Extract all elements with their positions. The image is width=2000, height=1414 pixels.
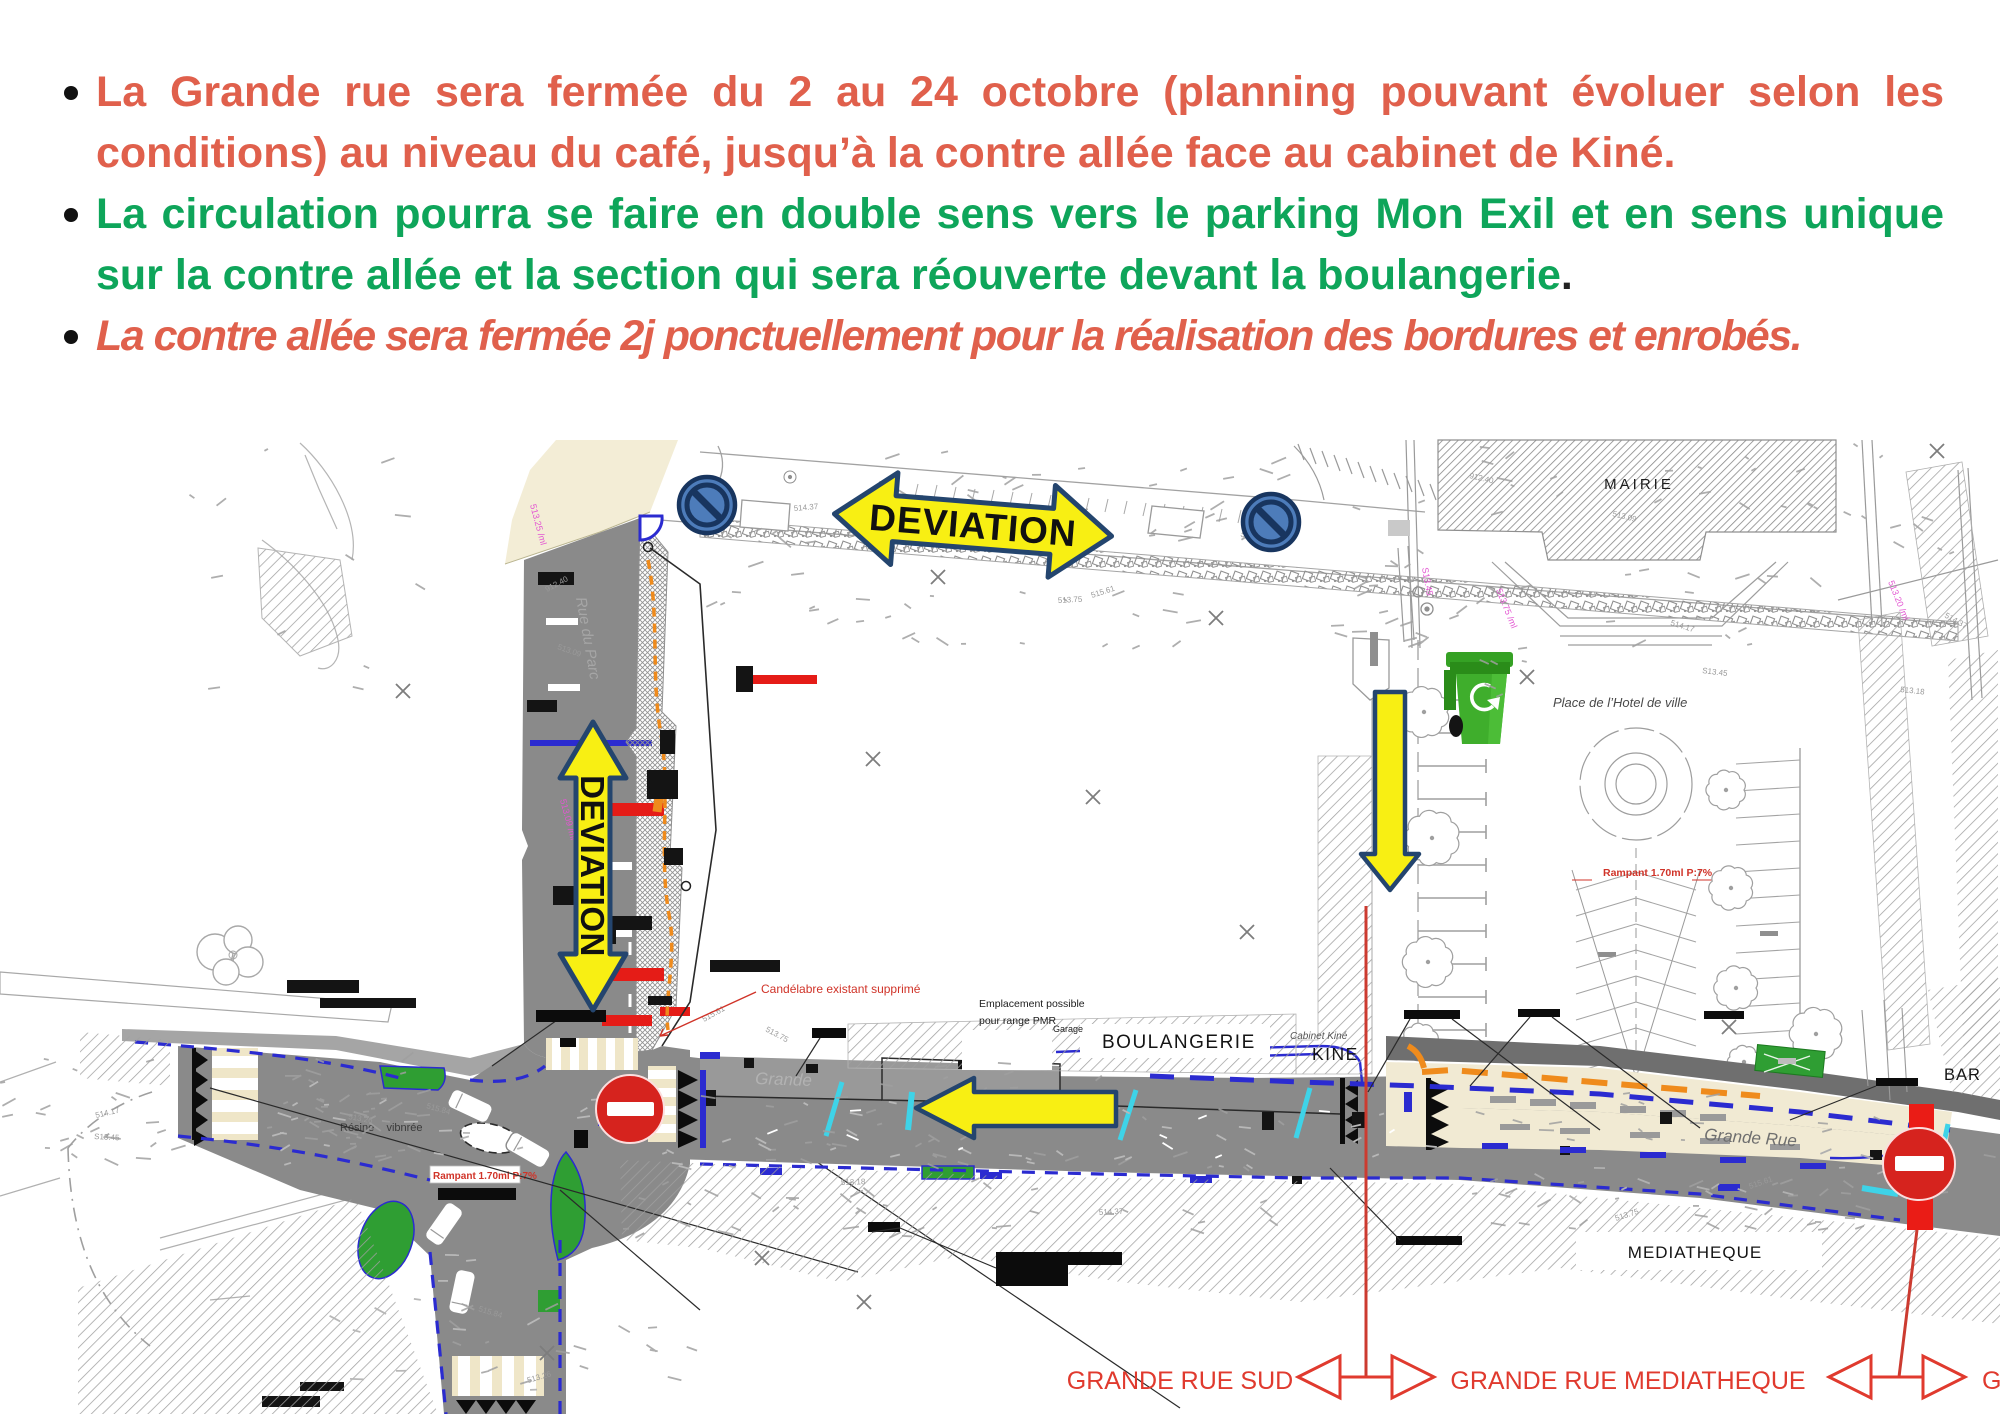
svg-text:GRANDE RUE SUD: GRANDE RUE SUD [1067, 1367, 1293, 1395]
svg-text:514.37: 514.37 [793, 502, 819, 513]
svg-text:515.61: 515.61 [1090, 584, 1117, 600]
svg-text:MEDIATHEQUE: MEDIATHEQUE [1628, 1243, 1762, 1262]
svg-text:Cabinet Kiné: Cabinet Kiné [1290, 1031, 1348, 1042]
svg-text:514.17: 514.17 [94, 1106, 120, 1120]
svg-text:513.75: 513.75 [764, 1025, 790, 1045]
svg-text:Emplacement possible: Emplacement possible [979, 998, 1085, 1010]
svg-text:Grande: Grande [755, 1069, 812, 1090]
svg-text:S13.45: S13.45 [94, 1132, 120, 1142]
svg-text:BOULANGERIE: BOULANGERIE [1102, 1032, 1256, 1053]
svg-text:Place de l’Hotel de ville: Place de l’Hotel de ville [1553, 695, 1687, 710]
svg-text:DEVIATION: DEVIATION [574, 775, 611, 957]
svg-text:KINE: KINE [1312, 1044, 1359, 1064]
svg-text:Garage: Garage [1053, 1024, 1083, 1034]
svg-text:MAIRIE: MAIRIE [1604, 476, 1674, 493]
svg-text:Rampant 1.70ml P:7%: Rampant 1.70ml P:7% [1603, 867, 1713, 879]
svg-text:514.17: 514.17 [1669, 618, 1696, 634]
svg-text:Candélabre existant supprimé: Candélabre existant supprimé [761, 982, 921, 996]
svg-text:513.18: 513.18 [841, 1177, 866, 1187]
svg-text:pour range PMR: pour range PMR [979, 1015, 1056, 1027]
svg-text:S13.45: S13.45 [1702, 666, 1729, 678]
svg-text:514.37: 514.37 [1099, 1207, 1124, 1217]
svg-text:GRANDE RUE MEDIATHEQUE: GRANDE RUE MEDIATHEQUE [1450, 1367, 1805, 1395]
svg-text:BAR: BAR [1944, 1066, 1981, 1084]
svg-text:GR: GR [1982, 1367, 2000, 1395]
svg-text:513.75: 513.75 [1058, 595, 1083, 605]
